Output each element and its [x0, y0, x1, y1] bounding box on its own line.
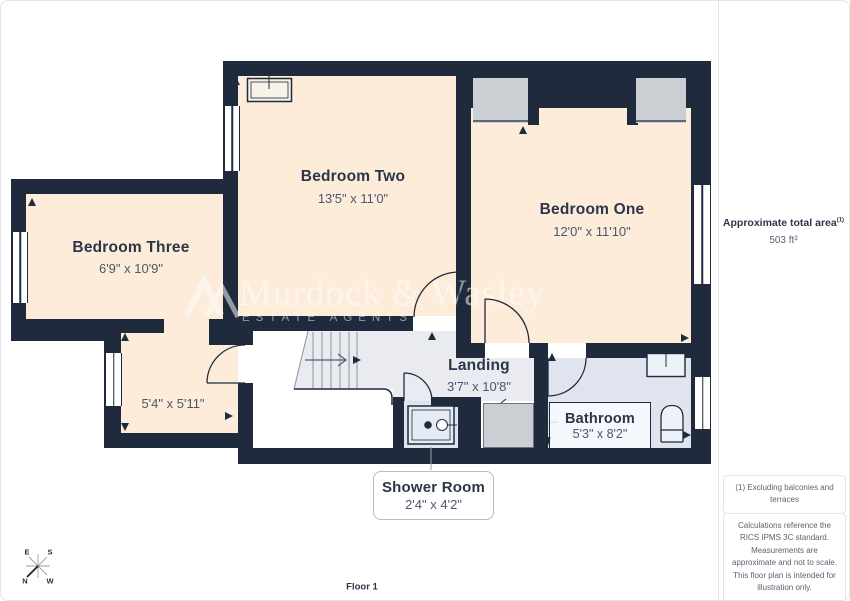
- bedroom-three-dims: 6'9" x 10'9": [99, 260, 163, 278]
- compass-north-label: N: [22, 577, 27, 586]
- window: [693, 185, 711, 284]
- stairs: [294, 331, 361, 389]
- wall-segment: [393, 397, 404, 448]
- room-name: Bedroom Three: [72, 239, 189, 256]
- total-area-label: Approximate total area: [723, 217, 837, 229]
- wall-segment: [121, 319, 164, 333]
- wall-segment: [534, 358, 548, 449]
- window: [694, 377, 711, 429]
- wall-segment: [238, 448, 711, 464]
- storage-cupboard: [483, 403, 534, 448]
- bedroom-one-dims: 12'0" x 11'10": [553, 223, 631, 241]
- watermark-tagline: ESTATE AGENTS: [242, 312, 413, 324]
- watermark-logo-icon: [184, 273, 246, 321]
- wall-segment: [458, 397, 481, 448]
- room-dims: 3'7" x 10'8": [447, 379, 511, 394]
- shower-room-callout: Shower Room 2'4" x 4'2": [373, 471, 494, 520]
- room-dims: 6'9" x 10'9": [99, 261, 163, 276]
- watermark-name: Murdock & Wasley: [239, 272, 545, 315]
- bedroom-two-dims: 13'5" x 11'0": [318, 190, 388, 208]
- room-dims: 5'4" x 5'11": [141, 396, 204, 411]
- wall-segment: [529, 343, 548, 358]
- room-name: Bedroom One: [540, 201, 645, 218]
- dressing-room-floor: [121, 333, 238, 433]
- footnote-box: (1) Excluding balconies and terraces: [723, 475, 846, 514]
- sidebar-divider: [718, 1, 719, 600]
- wall-segment: [11, 179, 228, 194]
- bedroom-three-label: Bedroom Three: [72, 239, 189, 257]
- wall-segment: [456, 343, 485, 358]
- window-pane: [231, 106, 233, 171]
- landing-dims: 3'7" x 10'8": [447, 378, 511, 396]
- window-pane: [702, 377, 704, 429]
- dressing-room-dims: 5'4" x 5'11": [141, 395, 204, 413]
- compass-north-arm: [27, 566, 38, 577]
- wall-segment: [104, 433, 253, 448]
- floorplan-page: Murdock & Wasley ESTATE AGENTS: [0, 0, 850, 601]
- room-dims: 13'5" x 11'0": [318, 191, 388, 206]
- window: [12, 232, 28, 303]
- wall-segment: [223, 61, 471, 76]
- room-name: Bedroom Two: [301, 168, 405, 185]
- wall-segment: [223, 331, 253, 345]
- footnote-text: (1) Excluding balconies and terraces: [732, 482, 837, 507]
- chimney-pier: [528, 108, 539, 125]
- disclaimer-box: Calculations reference the RICS IPMS 3C …: [723, 513, 846, 601]
- floor-label: Floor 1: [346, 582, 378, 593]
- shower-room-floor: [404, 401, 458, 448]
- bedroom-two-label: Bedroom Two: [301, 168, 405, 186]
- room-name: Landing: [448, 357, 510, 374]
- wall-segment: [431, 397, 458, 407]
- room-name: Bathroom: [565, 411, 635, 427]
- footnote-marker: (1): [837, 218, 844, 224]
- total-area-title: Approximate total area(1): [718, 217, 849, 229]
- window-pane: [19, 232, 21, 303]
- wardrobe-alcove: [473, 78, 528, 123]
- window-pane: [113, 353, 115, 406]
- wall-segment: [209, 319, 223, 345]
- compass-south-label: S: [47, 548, 52, 557]
- window-pane: [701, 185, 703, 284]
- room-dims: 2'4" x 4'2": [405, 497, 462, 512]
- window: [105, 353, 122, 406]
- stairs-up-arrow-icon: [338, 354, 346, 366]
- total-area-block: Approximate total area(1) 503 ft²: [718, 217, 849, 246]
- disclaimer-text: Calculations reference the RICS IPMS 3C …: [732, 520, 837, 594]
- bedroom-one-label: Bedroom One: [540, 201, 645, 219]
- bathtub: Bathroom 5'3" x 8'2": [549, 402, 651, 449]
- landing-label: Landing: [448, 357, 510, 375]
- compass-east-label: E: [24, 548, 29, 557]
- room-dims: 5'3" x 8'2": [573, 427, 628, 441]
- room-name: Shower Room: [382, 479, 485, 496]
- under-stairs-void: [294, 389, 393, 448]
- wardrobe-alcove: [636, 78, 686, 123]
- wall-segment: [586, 343, 711, 358]
- compass-west-label: W: [46, 577, 53, 586]
- total-area-value: 503 ft²: [718, 235, 849, 246]
- compass-icon: [26, 554, 50, 578]
- room-dims: 12'0" x 11'10": [553, 224, 631, 239]
- bedroom-three-opening: [164, 319, 209, 333]
- window: [224, 106, 240, 171]
